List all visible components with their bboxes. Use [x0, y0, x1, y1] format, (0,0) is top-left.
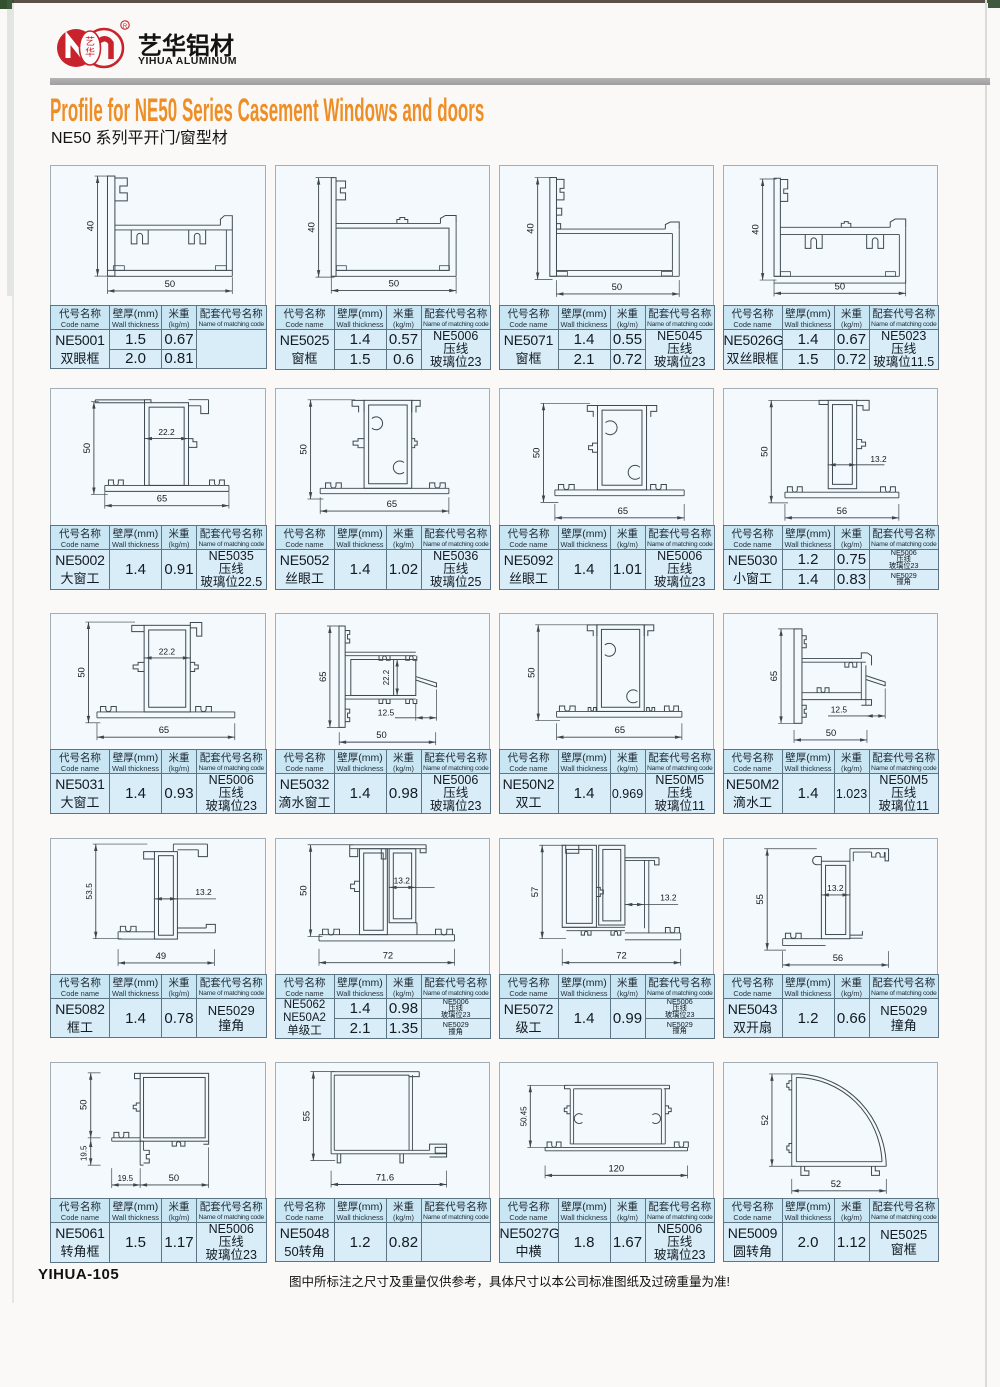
- svg-text:50: 50: [75, 667, 86, 677]
- svg-text:120: 120: [608, 1162, 624, 1173]
- svg-text:13.2: 13.2: [870, 454, 887, 464]
- svg-text:50.45: 50.45: [519, 1106, 528, 1126]
- svg-text:50: 50: [834, 280, 844, 291]
- svg-text:50: 50: [530, 448, 541, 458]
- svg-text:50: 50: [758, 446, 769, 456]
- svg-text:65: 65: [614, 724, 624, 735]
- svg-text:艺: 艺: [85, 36, 95, 48]
- svg-text:50: 50: [169, 1172, 179, 1183]
- svg-text:65: 65: [159, 724, 169, 735]
- svg-text:57: 57: [529, 887, 540, 897]
- svg-text:22.2: 22.2: [381, 670, 390, 685]
- svg-text:R: R: [123, 24, 128, 30]
- svg-text:50: 50: [388, 278, 398, 289]
- svg-text:40: 40: [749, 224, 760, 234]
- svg-text:65: 65: [768, 671, 779, 681]
- svg-text:50: 50: [297, 444, 308, 454]
- svg-text:56: 56: [836, 505, 846, 516]
- svg-text:40: 40: [85, 221, 96, 231]
- svg-text:华: 华: [85, 46, 95, 59]
- svg-text:40: 40: [524, 223, 535, 233]
- svg-text:13.2: 13.2: [827, 883, 844, 893]
- svg-text:53.5: 53.5: [84, 883, 94, 900]
- svg-text:50: 50: [376, 729, 386, 740]
- svg-text:12.5: 12.5: [377, 708, 394, 718]
- svg-text:19.5: 19.5: [118, 1174, 134, 1183]
- svg-text:40: 40: [305, 222, 316, 232]
- svg-text:55: 55: [754, 894, 765, 904]
- svg-text:50: 50: [611, 281, 621, 292]
- svg-text:50: 50: [525, 667, 536, 677]
- svg-text:12.5: 12.5: [830, 705, 847, 715]
- svg-text:55: 55: [300, 1111, 311, 1121]
- svg-text:72: 72: [616, 950, 626, 961]
- svg-text:56: 56: [832, 952, 842, 963]
- svg-text:65: 65: [617, 505, 627, 516]
- svg-text:72: 72: [382, 950, 392, 961]
- svg-text:22.2: 22.2: [158, 427, 175, 437]
- svg-text:50: 50: [165, 278, 175, 289]
- svg-text:49: 49: [156, 950, 166, 961]
- svg-text:50: 50: [81, 443, 92, 453]
- svg-text:65: 65: [316, 671, 327, 681]
- svg-text:13.2: 13.2: [393, 875, 410, 885]
- svg-text:50: 50: [297, 885, 308, 895]
- svg-text:50: 50: [825, 727, 835, 738]
- svg-text:19.5: 19.5: [80, 1145, 89, 1161]
- svg-text:52: 52: [758, 1115, 769, 1125]
- svg-text:50: 50: [78, 1100, 89, 1110]
- svg-text:22.2: 22.2: [159, 647, 176, 657]
- svg-text:65: 65: [157, 493, 167, 504]
- svg-text:65: 65: [386, 498, 396, 509]
- svg-text:13.2: 13.2: [660, 893, 677, 903]
- svg-text:13.2: 13.2: [195, 887, 212, 897]
- svg-text:52: 52: [830, 1178, 840, 1189]
- svg-text:71.6: 71.6: [375, 1172, 393, 1183]
